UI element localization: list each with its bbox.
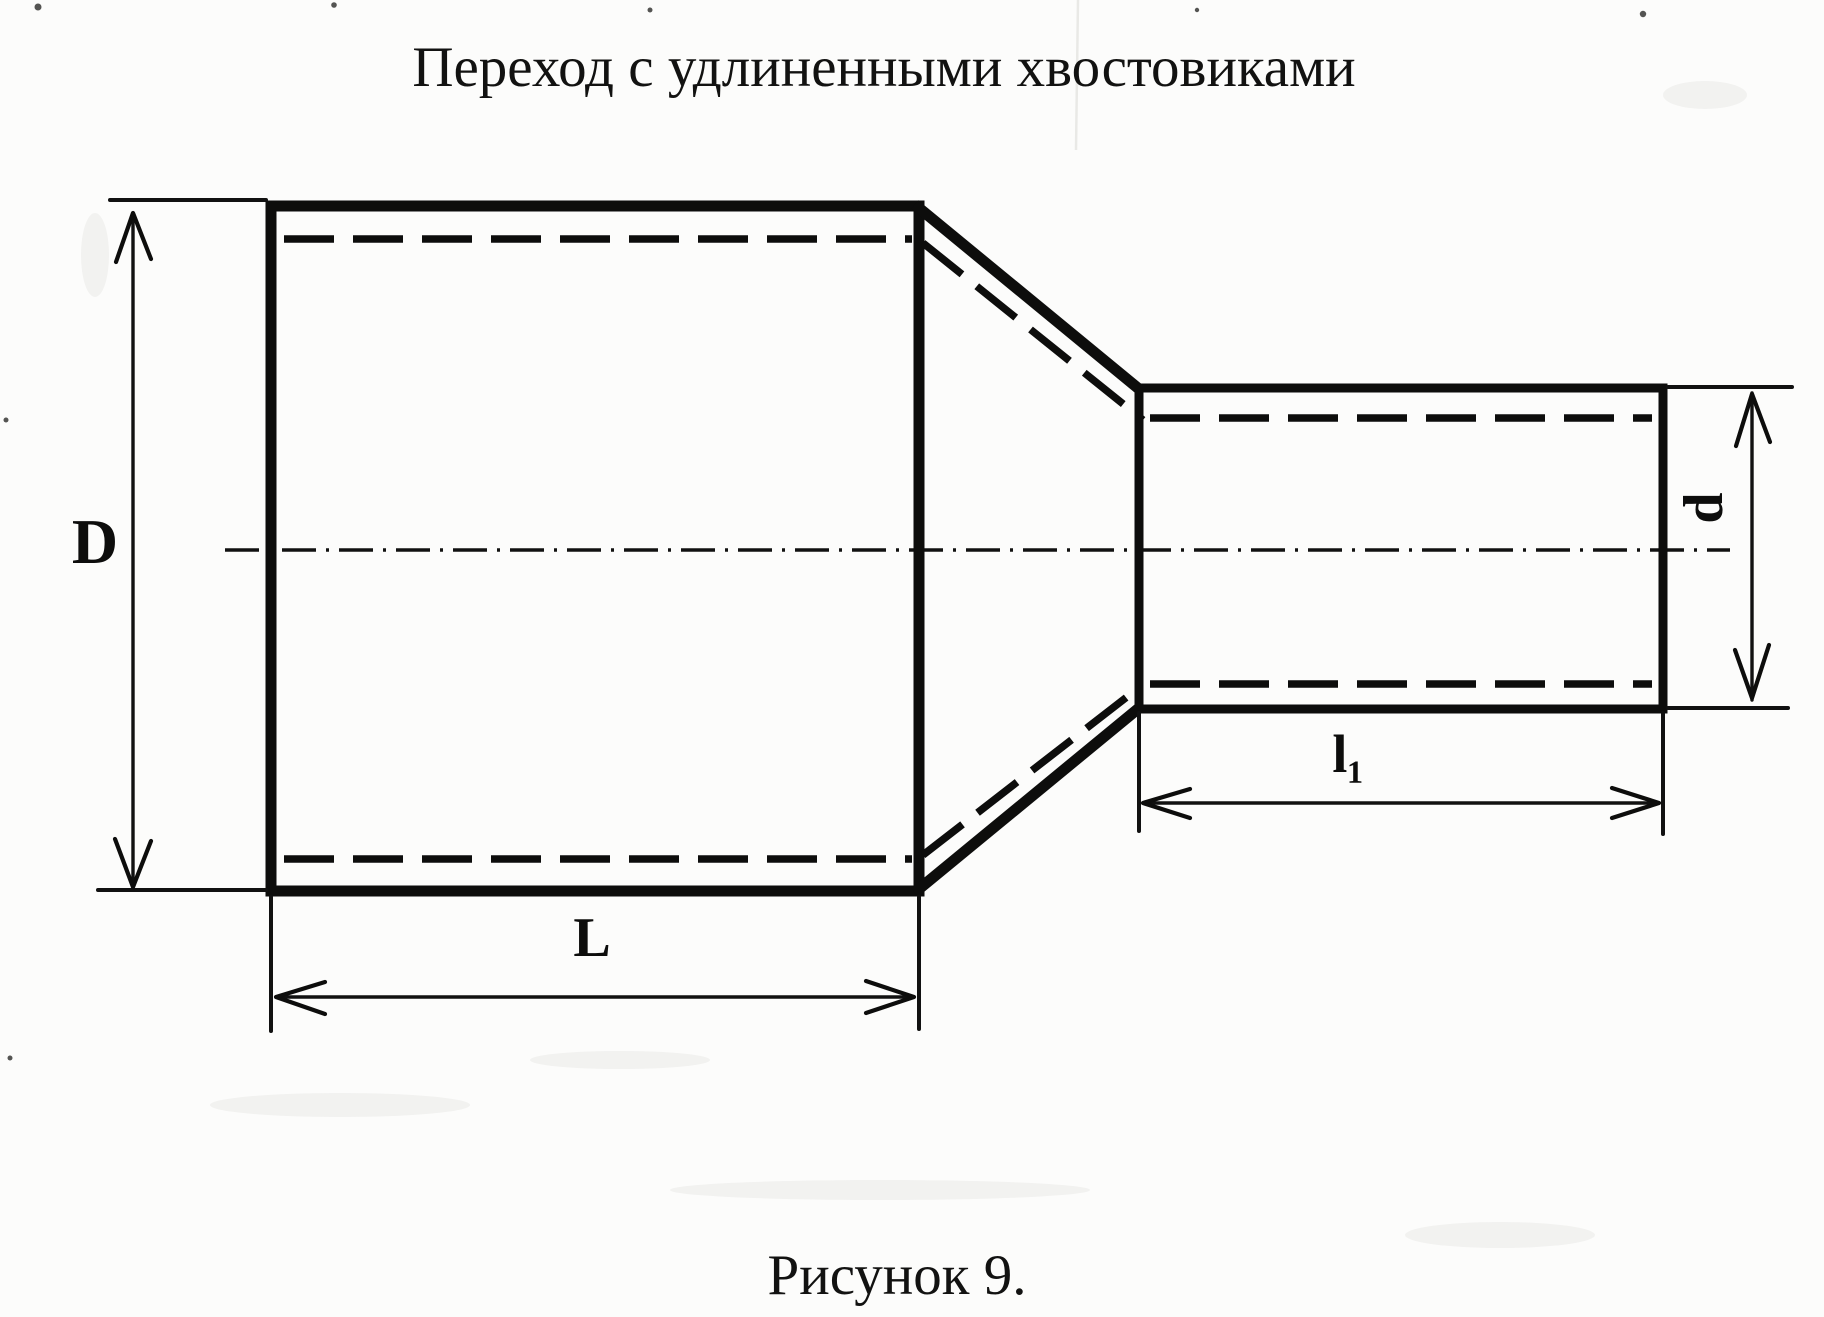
figure-title: Переход с удлиненными хвостовиками: [412, 36, 1355, 99]
scanned-drawing-page: Переход с удлиненными хвостовиками D: [0, 0, 1824, 1317]
label-large-diameter: D: [72, 506, 118, 577]
cone-inner-wall-top: [923, 243, 1143, 420]
dimension-L: L: [271, 897, 919, 1031]
cone-inner-wall-bottom: [923, 686, 1141, 855]
figure-caption: Рисунок 9.: [768, 1244, 1027, 1307]
label-shank-length: l₁: [1332, 724, 1363, 784]
dimension-L1: l₁: [1139, 713, 1663, 834]
cone-outer-bottom-edge: [919, 708, 1139, 889]
cone-outer-top-edge: [919, 208, 1139, 389]
dimension-D: D: [72, 200, 266, 890]
label-small-diameter: d: [1673, 492, 1735, 523]
drawing-canvas: Переход с удлиненными хвостовиками D: [0, 0, 1824, 1317]
scan-artifacts: [4, 0, 1748, 1248]
label-large-length: L: [573, 907, 610, 969]
dimension-d: d: [1668, 387, 1792, 708]
